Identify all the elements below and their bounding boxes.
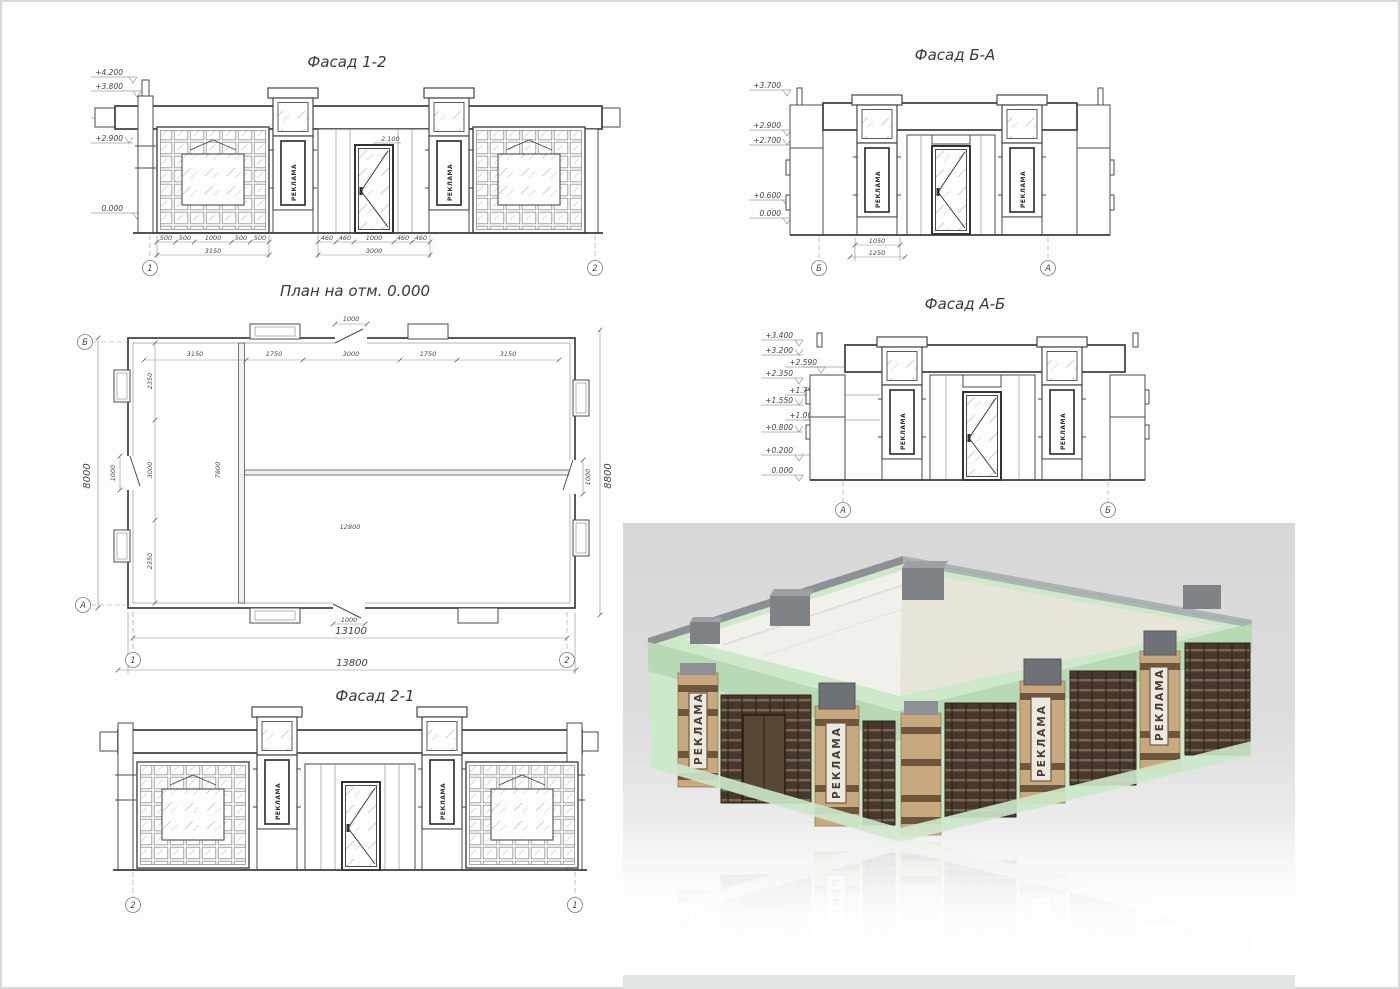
grid-bubble-2: 2 [564,656,569,666]
plan-drawing: 1000 1000 1000 1000 [109,315,592,626]
dim-bottom-total: 13800 [336,658,368,669]
facade-b-a-dimensions: 1050 1250 [848,237,908,261]
reklama-sign-text: РЕКЛАМА [275,783,282,820]
elevation-label: +0.200 [765,446,793,455]
elevation-label: +3.200 [765,346,793,355]
elevation-label: 0.000 [102,204,124,213]
dim: 500 [254,234,266,242]
grid-bubble-b: Б [1105,506,1111,516]
pylon-right-corner [901,701,941,835]
reklama-sign-text: РЕКЛАМА [693,692,705,765]
dim: 1000 [205,234,222,242]
facade-1-2-elevations: +4.200 +3.800 +3.000 +2.900 0.000 [91,68,141,219]
grid-bubble-a: А [79,601,86,611]
dim: 500 [160,234,172,242]
window-band [1070,671,1136,785]
facade-2-1: Фасад 2-1 РЕКЛАМА РЕКЛАМА 2 1 [90,685,610,920]
plan-title: План на отм. 0.000 [280,282,430,300]
reklama-sign-text: РЕКЛАМА [831,726,843,799]
elevation-label: +3.800 [95,82,123,91]
elevation-label: +2.590 [789,358,817,367]
facade-1-2-dimensions: 500 500 1000 500 500 3150 460 460 1000 4… [155,234,433,258]
grid-bubble-1: 1 [130,656,135,666]
door-height-dim: 2.100 [381,135,400,143]
reklama-sign-text: РЕКЛАМА [1060,413,1067,450]
dim-room-width: 12800 [340,523,361,531]
dim: 3000 [343,350,360,358]
dim-total: 3000 [366,247,383,255]
grid-bubble-2: 2 [130,901,135,911]
dim: 460 [397,234,409,242]
reklama-sign-text: РЕКЛАМА [447,164,454,201]
dim: 460 [339,234,351,242]
dim: 1750 [420,350,437,358]
drawing-sheet: Фасад 1-2 +4.200 +3.800 +3.000 +2.900 0.… [0,0,1400,989]
dim: 460 [415,234,427,242]
reklama-sign-text: РЕКЛАМА [1154,668,1166,741]
dim: 500 [235,234,247,242]
dim-room-height: 7800 [214,462,222,479]
elevation-label: +2.900 [95,134,123,143]
window-band [863,721,895,825]
facade-a-b-drawing: РЕКЛАМА РЕКЛАМА [806,333,1149,480]
facade-b-a: Фасад Б-А +3.700 +2.900 +2.700 +0.600 0.… [745,45,1155,280]
dim-total: 3150 [205,247,222,255]
dim: 500 [179,234,191,242]
facade-1-2-drawing: 2.100 РЕКЛАМА РЕКЛАМА [95,80,620,233]
elevation-label: 0.000 [760,209,782,218]
dim: 2350 [146,553,154,570]
dim: 3000 [146,462,154,479]
grid-bubble-b: Б [82,338,88,348]
dim: 1050 [869,237,886,245]
facade-a-b: Фасад А-Б +3.400 +3.200 +2.590 +2.350 +1… [755,295,1165,530]
dim-bottom-inner: 13100 [335,626,367,637]
reklama-sign-text: РЕКЛАМА [1036,704,1048,777]
elevation-label: +2.350 [765,369,793,378]
facade-b-a-title: Фасад Б-А [915,46,996,64]
dim: 1000 [366,234,383,242]
grid-bubble-2: 2 [592,264,597,274]
floor-plan: План на отм. 0.000 1000 1000 1000 1000 [60,280,640,680]
window-band [1185,643,1250,755]
render-floor-band [623,975,1295,989]
elevation-label: +1.550 [765,396,793,405]
facade-2-1-drawing: РЕКЛАМА РЕКЛАМА [100,707,598,870]
dim: 3150 [500,350,517,358]
plan-bottom-door-dim: 1000 [341,616,358,624]
elevation-label: +0.800 [765,423,793,432]
dim: 1750 [266,350,283,358]
reklama-sign-text: РЕКЛАМА [291,164,298,201]
facade-a-b-title: Фасад А-Б [925,295,1006,313]
dim: 3150 [187,350,204,358]
window-band [945,703,1016,817]
dim: 1250 [869,249,886,257]
plan-top-door-dim: 1000 [343,315,360,323]
reklama-sign-text: РЕКЛАМА [875,171,882,208]
elevation-label: +3.400 [765,331,793,340]
elevation-label: 0.000 [772,466,794,475]
reklama-sign-text: РЕКЛАМА [900,413,907,450]
elevation-label: +2.900 [753,121,781,130]
facade-2-1-title: Фасад 2-1 [335,687,414,705]
elevation-label: +4.200 [95,68,123,77]
dim-right-total: 8800 [603,463,614,488]
grid-bubble-a: А [1044,264,1051,274]
facade-1-2: Фасад 1-2 +4.200 +3.800 +3.000 +2.900 0.… [85,50,630,282]
reklama-sign-text: РЕКЛАМА [440,783,447,820]
elevation-label: +2.700 [753,136,781,145]
plan-left-door-dim: 1000 [109,465,117,482]
elevation-label: +3.700 [753,81,781,90]
dim: 2350 [146,373,154,390]
facade-1-2-title: Фасад 1-2 [307,53,386,71]
dim: 460 [321,234,333,242]
grid-bubble-1: 1 [147,264,152,274]
reklama-sign-text: РЕКЛАМА [1020,171,1027,208]
render-3d: РЕКЛАМА РЕКЛАМА РЕКЛАМА РЕКЛАМА [623,523,1295,989]
plan-right-window-dim: 1000 [584,469,592,486]
dim-left-total: 8000 [82,463,93,488]
elevation-label: +0.600 [753,191,781,200]
grid-bubble-b: Б [816,264,822,274]
facade-b-a-drawing: РЕКЛАМА РЕКЛАМА [786,88,1114,235]
grid-bubble-a: А [839,506,846,516]
reflection-fade [623,823,1295,989]
facade-b-a-elevations: +3.700 +2.900 +2.700 +0.600 0.000 [749,81,791,224]
grid-bubble-1: 1 [572,901,577,911]
